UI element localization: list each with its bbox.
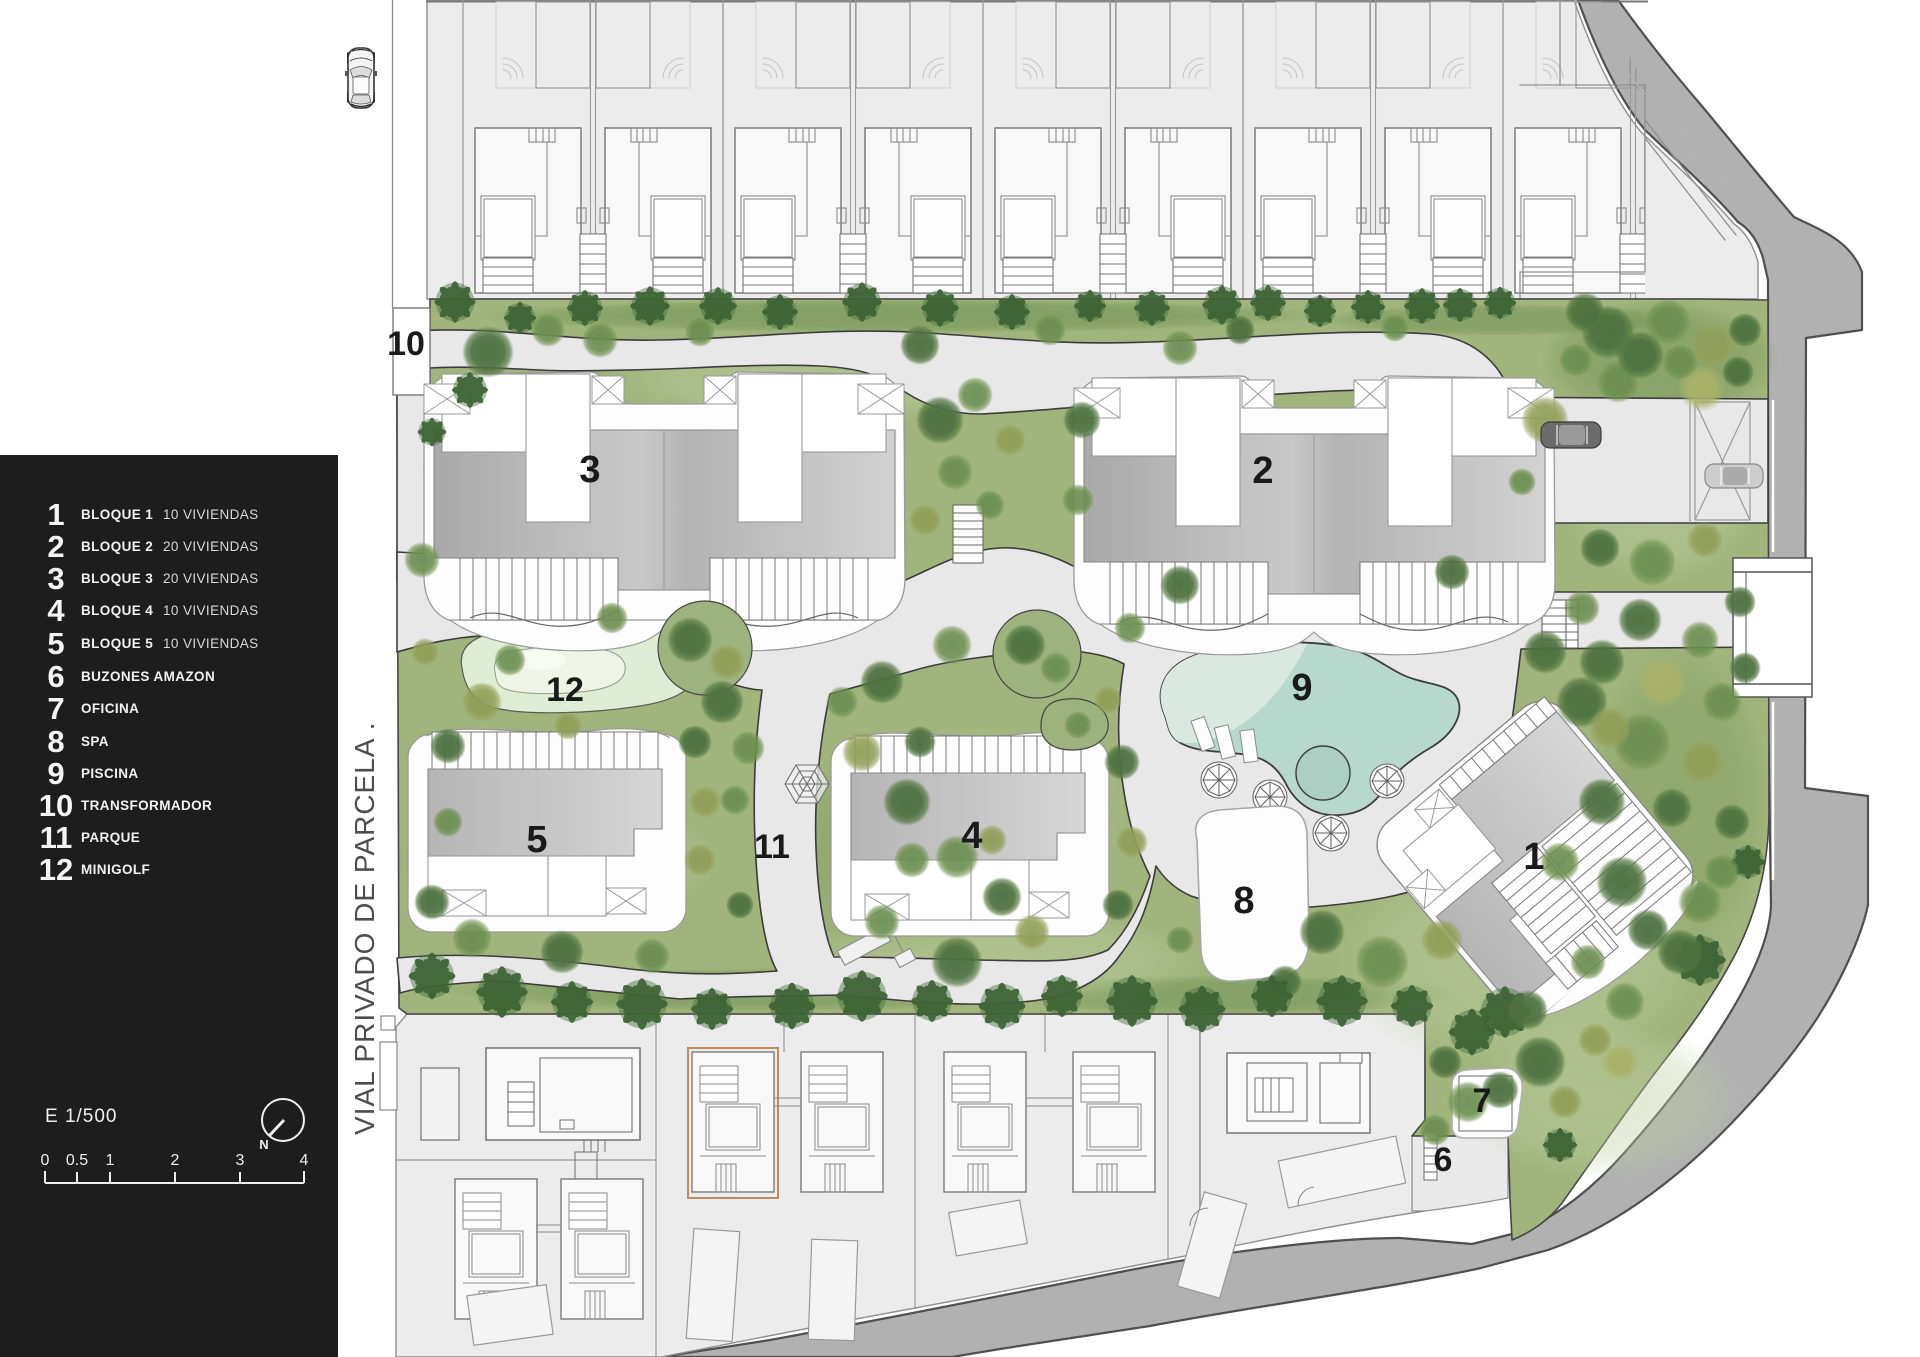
svg-text:PISCINA: PISCINA — [81, 766, 139, 781]
svg-text:12: 12 — [546, 671, 584, 709]
svg-text:10 VIVIENDAS: 10 VIVIENDAS — [163, 507, 259, 522]
svg-text:3: 3 — [579, 449, 600, 491]
svg-text:5: 5 — [47, 626, 64, 661]
svg-text:8: 8 — [47, 724, 64, 759]
svg-text:20 VIVIENDAS: 20 VIVIENDAS — [163, 539, 259, 554]
svg-text:9: 9 — [1291, 667, 1312, 709]
svg-text:10: 10 — [387, 325, 425, 363]
svg-text:11: 11 — [754, 828, 790, 866]
svg-text:BLOQUE 3: BLOQUE 3 — [81, 571, 153, 586]
svg-text:7: 7 — [47, 691, 64, 726]
svg-text:7: 7 — [1473, 1082, 1492, 1120]
svg-text:BLOQUE 4: BLOQUE 4 — [81, 603, 153, 618]
svg-text:12: 12 — [39, 852, 73, 887]
svg-text:8: 8 — [1233, 880, 1254, 922]
svg-text:6: 6 — [47, 659, 64, 694]
svg-text:4: 4 — [47, 593, 65, 628]
svg-text:E 1/500: E 1/500 — [45, 1106, 118, 1127]
svg-text:4: 4 — [300, 1152, 309, 1169]
svg-text:VIAL PRIVADO DE PARCELA .: VIAL PRIVADO DE PARCELA . — [349, 722, 380, 1136]
svg-text:3: 3 — [47, 561, 64, 596]
svg-text:BUZONES AMAZON: BUZONES AMAZON — [81, 669, 215, 684]
svg-text:BLOQUE 5: BLOQUE 5 — [81, 636, 153, 651]
svg-text:PARQUE: PARQUE — [81, 830, 140, 845]
svg-text:11: 11 — [40, 820, 73, 855]
svg-text:0: 0 — [41, 1152, 50, 1169]
svg-text:BLOQUE 2: BLOQUE 2 — [81, 539, 153, 554]
svg-text:BLOQUE 1: BLOQUE 1 — [81, 507, 153, 522]
svg-text:2: 2 — [1252, 450, 1273, 492]
svg-text:3: 3 — [236, 1152, 245, 1169]
svg-text:0.5: 0.5 — [66, 1152, 88, 1169]
svg-text:1: 1 — [47, 497, 64, 532]
svg-text:20 VIVIENDAS: 20 VIVIENDAS — [163, 571, 259, 586]
svg-text:5: 5 — [526, 819, 547, 861]
svg-text:9: 9 — [47, 756, 64, 791]
svg-text:6: 6 — [1434, 1141, 1453, 1179]
svg-text:2: 2 — [171, 1152, 180, 1169]
svg-text:10 VIVIENDAS: 10 VIVIENDAS — [163, 603, 259, 618]
svg-text:N: N — [259, 1137, 268, 1152]
svg-text:10 VIVIENDAS: 10 VIVIENDAS — [163, 636, 259, 651]
svg-text:MINIGOLF: MINIGOLF — [81, 862, 150, 877]
svg-text:4: 4 — [961, 815, 982, 857]
svg-text:OFICINA: OFICINA — [81, 701, 139, 716]
svg-text:SPA: SPA — [81, 734, 109, 749]
svg-text:1: 1 — [1523, 836, 1544, 878]
svg-text:TRANSFORMADOR: TRANSFORMADOR — [81, 798, 212, 813]
svg-text:1: 1 — [106, 1152, 115, 1169]
svg-text:10: 10 — [39, 788, 73, 823]
svg-text:2: 2 — [47, 529, 64, 564]
